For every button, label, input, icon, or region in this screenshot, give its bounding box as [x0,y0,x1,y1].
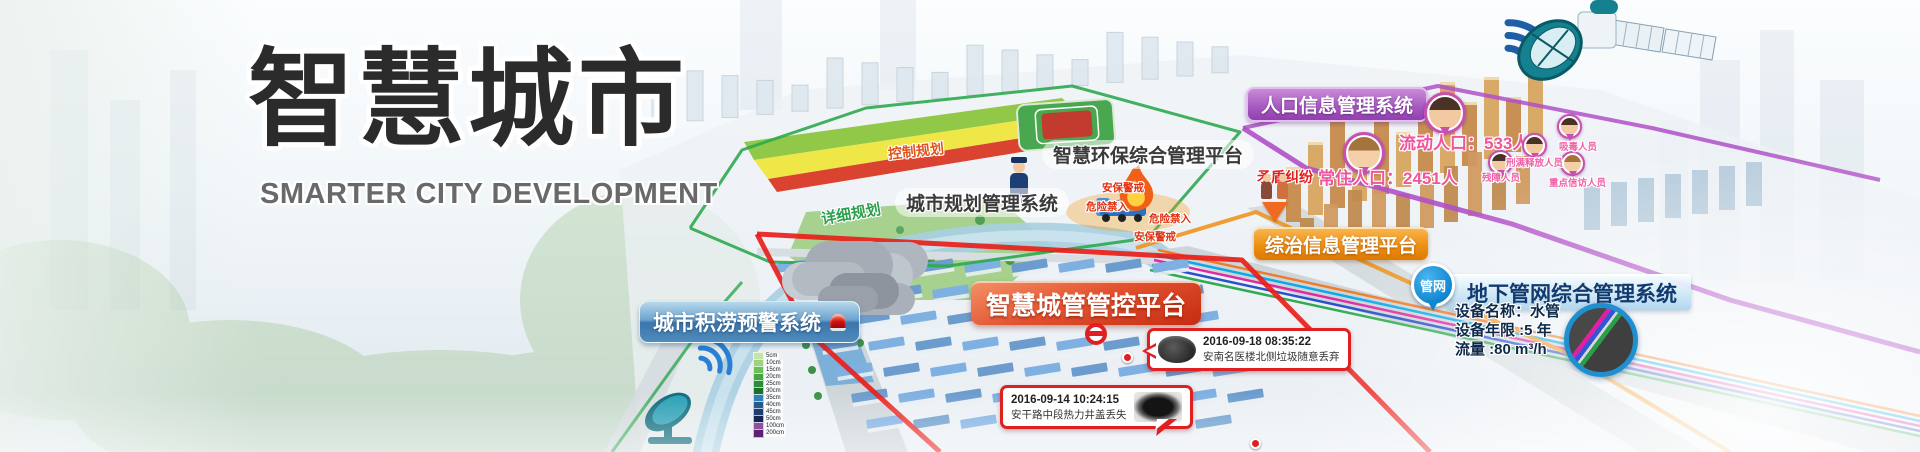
person-pin-icon [1560,151,1585,176]
face [1561,118,1578,135]
face [1564,155,1581,172]
incident-marker [1122,352,1133,363]
page-title: 智慧城市 [248,42,688,159]
incident-desc: 安南名医楼北侧垃圾随意丢弃 [1203,350,1340,364]
pipe-network-pin: 管网 [1411,263,1455,307]
incident-time: 2016-09-14 10:24:15 [1011,393,1127,408]
tag-security-alert: 安保警戒 [1102,180,1144,195]
label-city-mgmt-platform: 智慧城管管控平台 [971,281,1201,325]
pipe-details: 设备名称：水管 设备年限 :5 年 流量 :80 m³/h [1455,302,1560,359]
incident-text: 2016-09-18 08:35:22 安南名医楼北侧垃圾随意丢弃 [1203,335,1340,364]
page-subtitle: SMARTER CITY DEVELOPMENT [260,178,718,211]
no-entry-icon [1085,323,1107,345]
tag-danger-no-entry: 危险禁入 [1086,199,1128,214]
incident-callout-garbage: 2016-09-18 08:35:22 安南名医楼北侧垃圾随意丢弃 [1147,328,1351,371]
face [1526,137,1543,154]
dispute-person-icon [1277,181,1288,199]
garbage-photo [1158,336,1196,363]
label-population-system: 人口信息管理系统 [1246,87,1428,122]
category-petition: 重点信访人员 [1549,175,1606,189]
pipe-name: 设备名称：水管 [1455,302,1560,321]
dispute-arrow-icon [1262,202,1288,222]
siren-icon [830,314,846,331]
label-flood-warning-system: 城市积涝预警系统 [639,301,860,343]
flood-legend: 5cm10cm15cm20cm25cm30cm35cm40cm45cm50cm1… [753,353,786,437]
face [1429,97,1461,129]
category-drug: 吸毒人员 [1559,139,1597,153]
incident-marker [1250,438,1261,449]
tag-security-alert: 安保警戒 [1134,229,1176,244]
smart-city-banner: 智慧城市 SMARTER CITY DEVELOPMENT 智慧环保综合管理平台… [0,0,1920,452]
category-released: 刑满释放人员 [1506,155,1563,169]
incident-desc: 安干路中段热力井盖丢失 [1011,408,1127,422]
magnifier-icon [1564,303,1638,377]
incident-text: 2016-09-14 10:24:15 安干路中段热力井盖丢失 [1011,393,1127,422]
label-env-platform: 智慧环保综合管理平台 [1042,140,1254,169]
satellite-icon [1507,0,1716,91]
pipe-age: 设备年限 :5 年 [1455,321,1560,340]
incident-time: 2016-09-18 08:35:22 [1203,335,1340,350]
incident-callout-manhole: 2016-09-14 10:24:15 安干路中段热力井盖丢失 [1000,385,1193,429]
person-pin-icon [1424,92,1466,134]
manhole-photo [1134,392,1182,422]
label-planning-system: 城市规划管理系统 [895,188,1069,217]
flood-label-text: 城市积涝预警系统 [653,307,821,337]
dispute-person-icon [1261,181,1272,199]
tag-danger-no-entry: 危险禁入 [1149,211,1191,226]
floating-population-count: 流动人口：533人 [1399,129,1529,154]
person-pin-icon [1557,114,1582,139]
pipe-flow: 流量 :80 m³/h [1455,340,1560,359]
label-governance-platform: 综治信息管理平台 [1254,227,1428,260]
resident-population-count: 常住人口：2451人 [1318,164,1458,189]
category-disabled: 残障人员 [1482,170,1520,184]
